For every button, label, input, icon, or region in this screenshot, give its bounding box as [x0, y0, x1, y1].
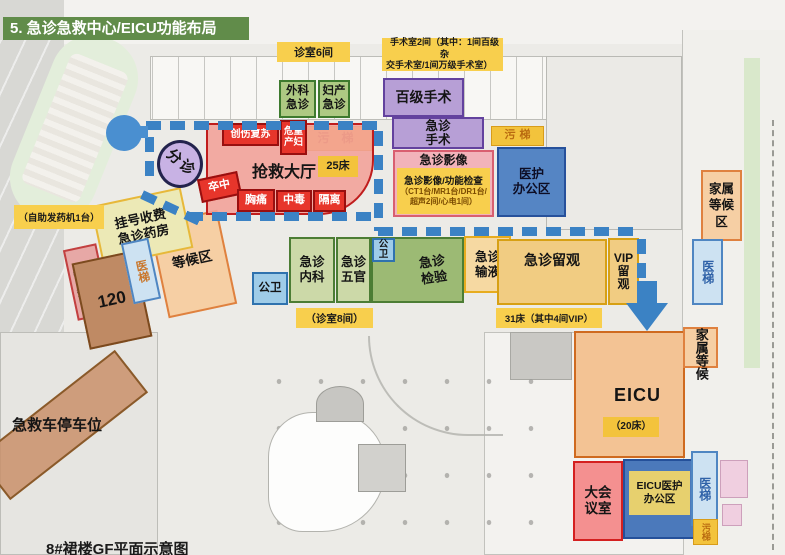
beds25-note: 25床 [318, 156, 358, 177]
family-waiting-area-label: 家属等候区 [708, 181, 736, 230]
poisoning-label: 中毒 [283, 194, 305, 207]
conference-room-label: 大会议室 [584, 485, 612, 517]
route-arrow-down-icon [626, 303, 668, 331]
emergency-ent-label: 急诊五官 [341, 255, 367, 285]
med-elevator-bottom-label: 医梯 [697, 477, 711, 501]
escalator-block [358, 444, 406, 492]
zone-emergency-imaging: 急诊影像 急诊影像/功能检查 （CT1台/MR1台/DR1台/ 超声2间/心电1… [393, 150, 494, 217]
note-or2-line1: 手术室2间（其中：1间百级杂 [386, 37, 503, 60]
rescue-hall-label: 抢救大厅 [252, 163, 316, 182]
zone-dirty-elevator-bottom: 污梯 [693, 519, 718, 545]
pub-toilet-top-label: 公卫 [378, 240, 389, 261]
dirty-elevator-right-label: 污梯 [501, 129, 535, 142]
zone-eicu-staff-office: EICU医护 办公区 [623, 459, 696, 539]
zone-emergency-internal: 急诊内科 [289, 237, 335, 303]
imaging-detail-1: 急诊影像/功能检查 [404, 176, 483, 187]
route-segment-main-1 [188, 212, 380, 221]
eicu-staff-office-label-1: EICU医护 [636, 480, 682, 493]
zone-class100-or: 百级手术 [383, 78, 464, 117]
emergency-internal-label: 急诊内科 [299, 255, 325, 285]
note-or2-line2: 交手术室/1间万级手术室） [386, 60, 493, 72]
med-elevator-left-label: 医梯 [132, 258, 150, 283]
page-title: 5. 急诊急救中心/EICU功能布局 [3, 17, 249, 40]
emergency-observation-label: 急诊留观 [524, 252, 580, 269]
zone-pub-toilet-top: 公卫 [372, 238, 395, 262]
staff-office-label-1: 医护 [519, 167, 544, 182]
emergency-imaging-title: 急诊影像 [419, 153, 467, 167]
zone-emergency-or: 急诊手术 [392, 117, 484, 149]
ambulance-120-label: 120 [96, 287, 128, 313]
stage-semicircle [316, 386, 364, 422]
zone-staff-office: 医护 办公区 [497, 147, 566, 217]
zone-surgical-emergency: 外科急诊 [279, 80, 316, 118]
route-segment-pre-arrow [637, 239, 646, 283]
entrance-marker [106, 115, 142, 151]
zone-eicu: EICU （20床） [574, 331, 685, 458]
route-segment-left [145, 137, 154, 179]
triage-label: 分诊 [162, 147, 198, 182]
zone-emergency-observation: 急诊留观 [497, 239, 607, 305]
med-elevator-right-label: 医梯 [700, 260, 714, 284]
trauma-label: 创伤复苏 [231, 129, 271, 141]
zone-emergency-ent: 急诊五官 [336, 237, 371, 303]
eicu-staff-office-inner: EICU医护 办公区 [629, 471, 690, 515]
vip-observation-label-1: VIP [614, 252, 633, 265]
imaging-detail-3: 超声2间/心电1间） [410, 197, 477, 207]
pink-room-2 [722, 504, 742, 526]
zone-chest-pain: 胸痛 [237, 189, 275, 212]
stroke-label: 卒中 [207, 178, 231, 195]
block-right-mid [546, 56, 682, 230]
emergency-lab-label: 急诊检验 [415, 252, 449, 287]
floorplan-slide: 5. 急诊急救中心/EICU功能布局 等候区 挂号收费 急诊药房 中毒病人 预处… [0, 0, 785, 555]
boundary-dashed-right [772, 120, 774, 550]
beds20-note: （20床） [603, 417, 659, 437]
dirty-elevator-bottom-label: 污梯 [700, 523, 711, 541]
green-strip-right [744, 58, 760, 368]
zone-pub-toilet-left: 公卫 [252, 272, 288, 305]
zone-med-elevator-right: 医梯 [692, 239, 723, 305]
note-dispenser: （自助发药机1台） [14, 205, 104, 229]
surgical-emergency-label: 外科急诊 [286, 85, 310, 113]
zone-med-elevator-bottom: 医梯 [691, 451, 718, 526]
note-beds31: 31床（其中4间VIP） [496, 308, 602, 328]
imaging-detail-2: （CT1台/MR1台/DR1台/ [400, 187, 487, 197]
zone-vip-observation: VIP 留 观 [608, 238, 639, 305]
note-consult6: 诊室6间 [277, 42, 350, 62]
pub-toilet-left-label: 公卫 [259, 282, 282, 296]
ambulance-parking-label: 急救车停车位 [12, 415, 172, 437]
note-or2: 手术室2间（其中：1间百级杂 交手术室/1间万级手术室） [382, 38, 503, 71]
zone-conference-room: 大会议室 [573, 461, 623, 541]
vip-observation-label-3: 观 [617, 278, 629, 291]
note-consult8: （诊室8间） [296, 308, 373, 328]
route-segment-top [146, 121, 382, 130]
zone-obgyn-emergency: 妇产急诊 [318, 80, 350, 118]
route-segment-main-2 [378, 227, 642, 236]
eicu-label: EICU [614, 385, 661, 407]
chest-pain-label: 胸痛 [245, 194, 267, 207]
ambulance-parking-text: 急救车停车位 [12, 417, 102, 435]
zone-isolation: 隔离 [313, 190, 346, 212]
isolation-label: 隔离 [319, 194, 341, 207]
imaging-detail-box: 急诊影像/功能检查 （CT1台/MR1台/DR1台/ 超声2间/心电1间） [397, 168, 490, 214]
plan-caption: 8#裙楼GF平面示意图 [46, 538, 276, 555]
family-waiting-lower-label: 家属等候 [689, 316, 713, 392]
obgyn-emergency-label: 妇产急诊 [322, 85, 346, 113]
zone-family-waiting-area: 家属等候区 [701, 170, 742, 241]
eicu-staff-office-label-2: 办公区 [644, 493, 676, 506]
staff-office-label-2: 办公区 [513, 182, 551, 197]
clinic-band-partitions [152, 57, 572, 119]
route-arrow-stem [637, 281, 657, 305]
class100-or-label: 百级手术 [396, 89, 452, 106]
zone-poisoning: 中毒 [276, 190, 312, 212]
waiting-area-label: 等候区 [171, 248, 214, 272]
pink-room-1 [720, 460, 748, 498]
emergency-or-label: 急诊手术 [423, 119, 453, 148]
zone-dirty-elevator-right: 污梯 [491, 126, 544, 146]
zone-triage: 分诊 [157, 140, 203, 188]
